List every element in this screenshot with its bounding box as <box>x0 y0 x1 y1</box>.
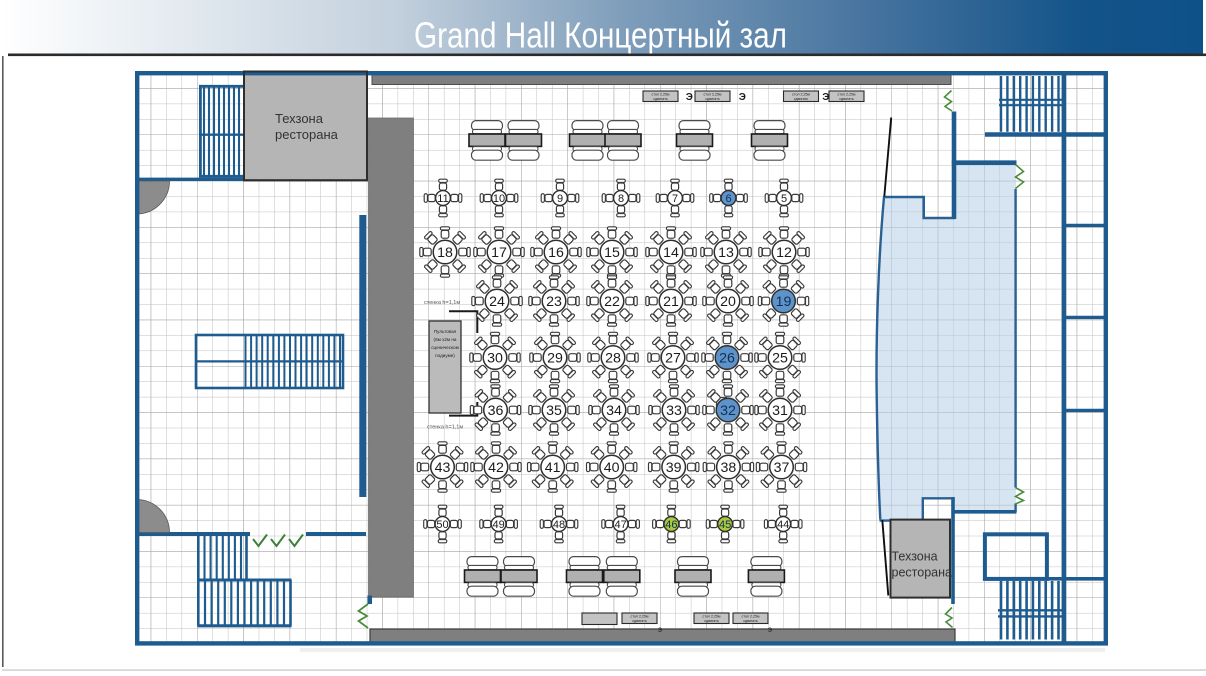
svg-text:27: 27 <box>665 351 681 367</box>
svg-text:(6м х2м на: (6м х2м на <box>434 337 457 342</box>
svg-text:15: 15 <box>604 245 620 261</box>
svg-text:Техзона: Техзона <box>892 550 938 564</box>
svg-text:Э: Э <box>739 92 746 103</box>
svg-text:стол 2,25м: стол 2,25м <box>838 93 856 97</box>
svg-text:14: 14 <box>663 245 679 261</box>
svg-text:стол 2,25м: стол 2,25м <box>704 93 722 97</box>
svg-text:31: 31 <box>772 403 788 419</box>
svg-text:11: 11 <box>437 193 448 205</box>
svg-text:38: 38 <box>721 460 737 476</box>
svg-text:44: 44 <box>777 519 789 531</box>
svg-text:26: 26 <box>719 351 735 367</box>
svg-text:29: 29 <box>547 351 563 367</box>
svg-text:10: 10 <box>493 193 505 205</box>
svg-text:17: 17 <box>491 245 507 261</box>
svg-text:Grand Hall Концертный зал: Grand Hall Концертный зал <box>414 15 787 56</box>
svg-text:сдвигать: сдвигать <box>653 97 668 101</box>
svg-text:сдвигать: сдвигать <box>839 97 854 101</box>
svg-text:э: э <box>658 625 662 634</box>
svg-text:стенка h=1,1м: стенка h=1,1м <box>427 425 463 431</box>
svg-text:18: 18 <box>437 245 453 261</box>
svg-text:45: 45 <box>719 519 731 531</box>
svg-text:7: 7 <box>672 193 678 205</box>
svg-text:стол 2,25м: стол 2,25м <box>703 615 721 619</box>
svg-text:сценическом: сценическом <box>431 345 459 350</box>
svg-text:19: 19 <box>776 294 792 310</box>
svg-text:33: 33 <box>666 403 682 419</box>
svg-text:20: 20 <box>720 294 736 310</box>
svg-text:43: 43 <box>435 460 451 476</box>
svg-text:сдвигать: сдвигать <box>632 619 647 623</box>
svg-text:8: 8 <box>618 193 624 205</box>
svg-text:6: 6 <box>725 193 731 205</box>
svg-text:стол 2,25м: стол 2,25м <box>652 93 670 97</box>
svg-text:сдвигать: сдвигать <box>704 619 719 623</box>
svg-text:Э: Э <box>686 92 693 103</box>
svg-text:стол 2,25м: стол 2,25м <box>742 615 760 619</box>
svg-text:стенка h=1,1м: стенка h=1,1м <box>424 300 460 306</box>
svg-text:37: 37 <box>774 460 790 476</box>
svg-text:36: 36 <box>488 403 504 419</box>
svg-text:9: 9 <box>557 193 563 205</box>
svg-text:42: 42 <box>488 460 504 476</box>
svg-text:30: 30 <box>487 351 503 367</box>
svg-text:49: 49 <box>492 519 504 531</box>
svg-text:Пультовая: Пультовая <box>434 329 457 334</box>
svg-text:22: 22 <box>604 294 620 310</box>
svg-text:сдвигать: сдвигать <box>743 619 758 623</box>
svg-text:41: 41 <box>545 460 561 476</box>
svg-text:5: 5 <box>781 193 787 205</box>
svg-text:47: 47 <box>614 519 626 531</box>
svg-text:50: 50 <box>436 519 448 531</box>
svg-text:48: 48 <box>553 519 565 531</box>
svg-text:12: 12 <box>776 245 792 261</box>
svg-text:сдвигать: сдвигать <box>705 97 720 101</box>
svg-text:ресторана: ресторана <box>275 127 339 142</box>
svg-text:стол 2,25м: стол 2,25м <box>631 615 649 619</box>
svg-text:стол 2,25м: стол 2,25м <box>792 93 810 97</box>
svg-text:21: 21 <box>663 294 679 310</box>
svg-text:Техзона: Техзона <box>275 111 324 126</box>
svg-text:34: 34 <box>606 403 622 419</box>
svg-text:40: 40 <box>604 460 620 476</box>
svg-text:32: 32 <box>720 403 736 419</box>
svg-text:Э: Э <box>822 92 829 103</box>
svg-text:39: 39 <box>666 460 682 476</box>
svg-text:сдвигать: сдвигать <box>794 97 809 101</box>
svg-text:25: 25 <box>772 351 788 367</box>
svg-text:э: э <box>768 625 772 634</box>
svg-text:23: 23 <box>546 294 562 310</box>
svg-text:16: 16 <box>548 245 564 261</box>
svg-text:13: 13 <box>718 245 734 261</box>
svg-text:28: 28 <box>605 351 621 367</box>
svg-text:35: 35 <box>546 403 562 419</box>
svg-text:ресторана: ресторана <box>892 566 952 580</box>
svg-text:24: 24 <box>489 294 505 310</box>
svg-text:подиуме): подиуме) <box>435 353 455 358</box>
svg-text:46: 46 <box>665 519 677 531</box>
